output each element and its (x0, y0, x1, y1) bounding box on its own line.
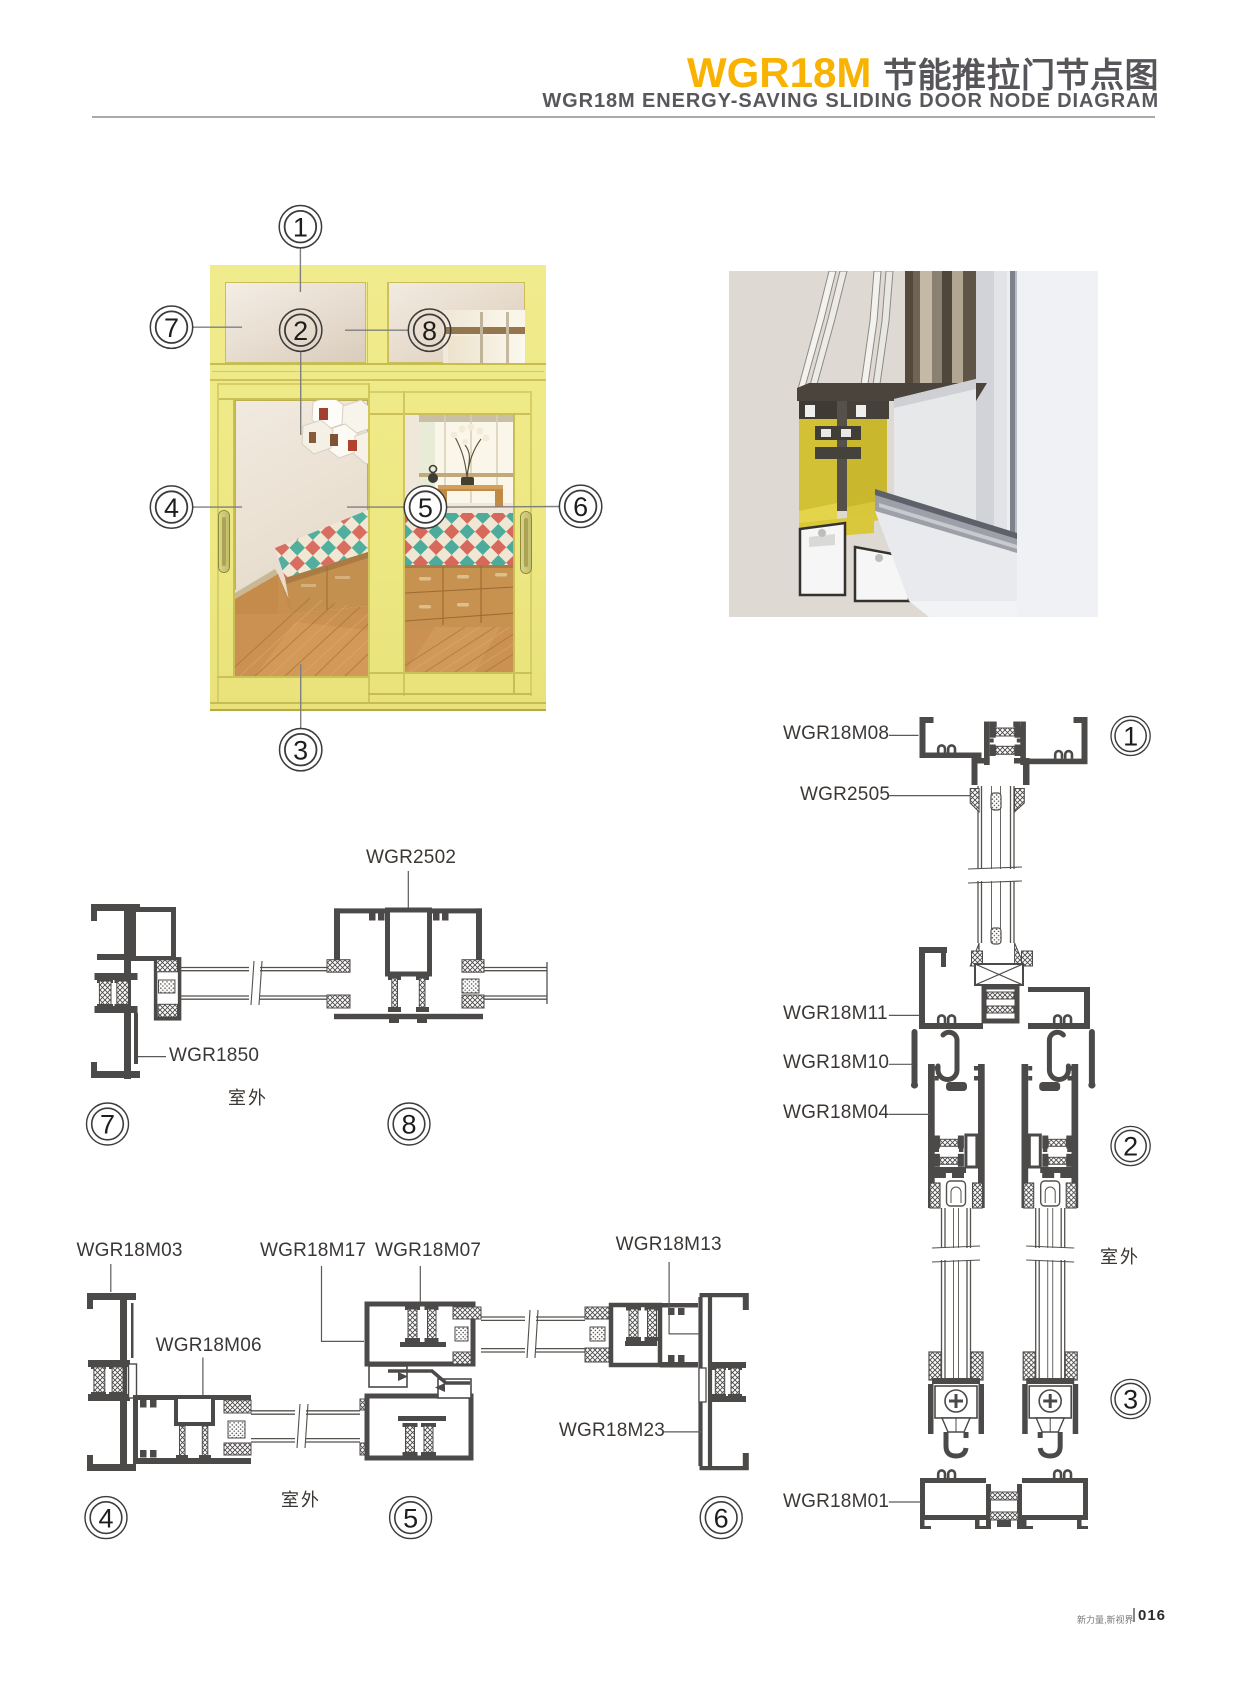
svg-text:4: 4 (164, 493, 179, 523)
svg-text:5: 5 (418, 493, 433, 523)
svg-text:6: 6 (573, 492, 588, 522)
svg-text:8: 8 (401, 1110, 416, 1140)
svg-text:3: 3 (293, 735, 308, 765)
svg-text:7: 7 (164, 313, 179, 343)
svg-text:3: 3 (1123, 1385, 1138, 1415)
svg-text:1: 1 (293, 212, 308, 242)
svg-text:8: 8 (422, 316, 437, 346)
svg-text:1: 1 (1123, 722, 1138, 752)
svg-text:2: 2 (293, 316, 308, 346)
svg-text:4: 4 (98, 1503, 113, 1533)
svg-text:5: 5 (403, 1503, 418, 1533)
svg-text:7: 7 (100, 1110, 115, 1140)
svg-text:6: 6 (714, 1503, 729, 1533)
svg-text:2: 2 (1123, 1132, 1138, 1162)
